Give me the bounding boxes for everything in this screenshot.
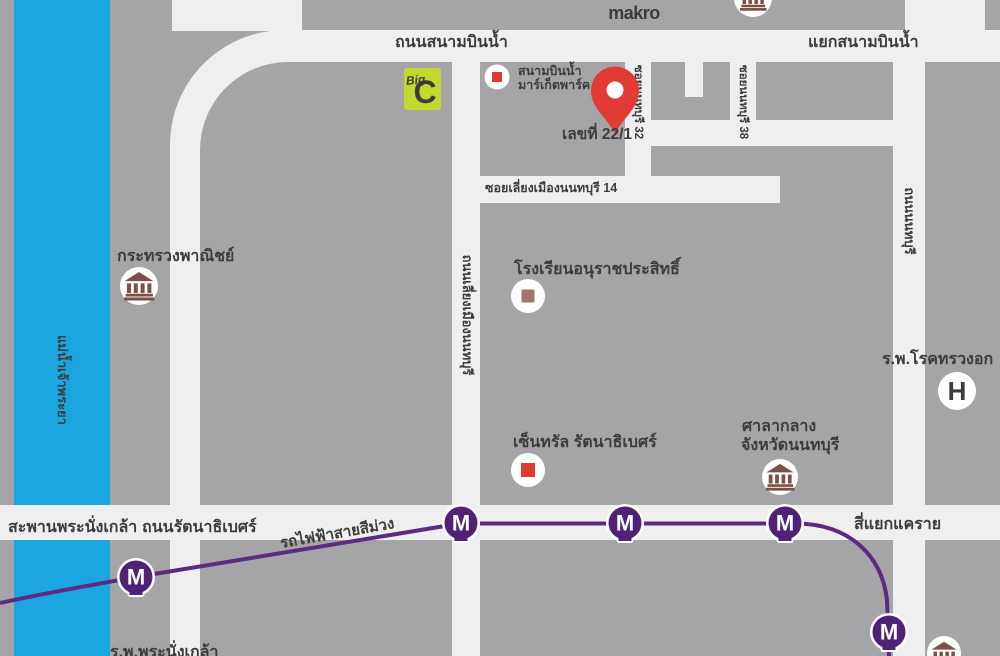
connector-road [625,120,893,146]
map-background [0,0,1000,656]
ministry-icon [120,267,158,305]
label-soi-14: ซอยเลี่ยงเมืองนนทบุรี 14 [485,179,617,196]
metro-m-label: M [127,565,145,590]
soi-stub [685,62,703,97]
metro-m-label: M [452,511,470,536]
nonthaburi-road [893,30,925,656]
metro-m-label: M [616,511,634,536]
school-icon-square [522,290,535,303]
label-nonthaburi-road: ถนนนนทบุรี [901,187,917,254]
label-bypass-road: ถนนเลี่ยงเมืองนนทบุรี [459,255,477,376]
chest-hospital-icon: H [938,372,976,410]
city-hall-icon [762,459,798,495]
metro-station-5: M [870,613,908,651]
metro-station-3: M [606,504,644,542]
metro-station-1: M [117,558,155,596]
central-icon-square [521,463,535,477]
label-soi-38: ซอยนนทบุรี 38 [736,65,750,140]
school-icon [511,279,545,313]
label-market-1: สนามบินน้ำ [518,61,581,78]
label-city-hall-1: ศาลากลาง [742,418,816,435]
label-city-hall-2: จังหวัดนนทบุรี [741,435,840,455]
metro-m-label: M [880,620,898,645]
map-canvas: ถนนสนามบินน้ำ แยกสนามบินน้ำ ซอยเลี่ยงเมื… [0,0,1000,656]
label-chest-hospital: ร.พ.โรคทรวงอก [882,348,993,368]
label-pin-address: เลขที่ 22/1 [562,122,632,143]
label-khae-rai: สี่แยกแคราย [854,512,941,533]
central-mall-icon [511,453,545,487]
metro-station-2: M [442,504,480,542]
bypass-road-south [452,540,480,656]
makro-logo: makro [608,3,660,23]
label-ministry: กระทรวงพาณิชย์ [117,246,234,265]
market-park-icon-square [492,72,502,82]
metro-m-label: M [776,511,794,536]
pin-icon-hole [607,82,624,99]
label-school: โรงเรียนอนุราชประสิทธิ์ [513,257,682,279]
bigc-word-big: Big [405,72,426,88]
label-central: เซ็นทรัล รัตนาธิเบศร์ [513,430,657,451]
top-right-junction [905,0,985,31]
label-market-2: มาร์เก็ตพาร์ค [518,77,590,92]
market-park-landmark: สนามบินน้ำ มาร์เก็ตพาร์ค [485,61,591,92]
label-rattanathibet: ถนนรัตนาธิเบศร์ [142,517,257,536]
label-bridge: สะพานพระนั่งเกล้า [8,515,137,536]
label-river: แม่น้ำเจ้าพระยา [55,335,73,425]
top-left-junction [172,0,302,31]
hospital-h-letter: H [948,376,967,406]
bigc-logo: C Big [404,68,441,110]
metro-station-4: M [766,504,804,542]
chao-phraya-river [14,0,110,656]
